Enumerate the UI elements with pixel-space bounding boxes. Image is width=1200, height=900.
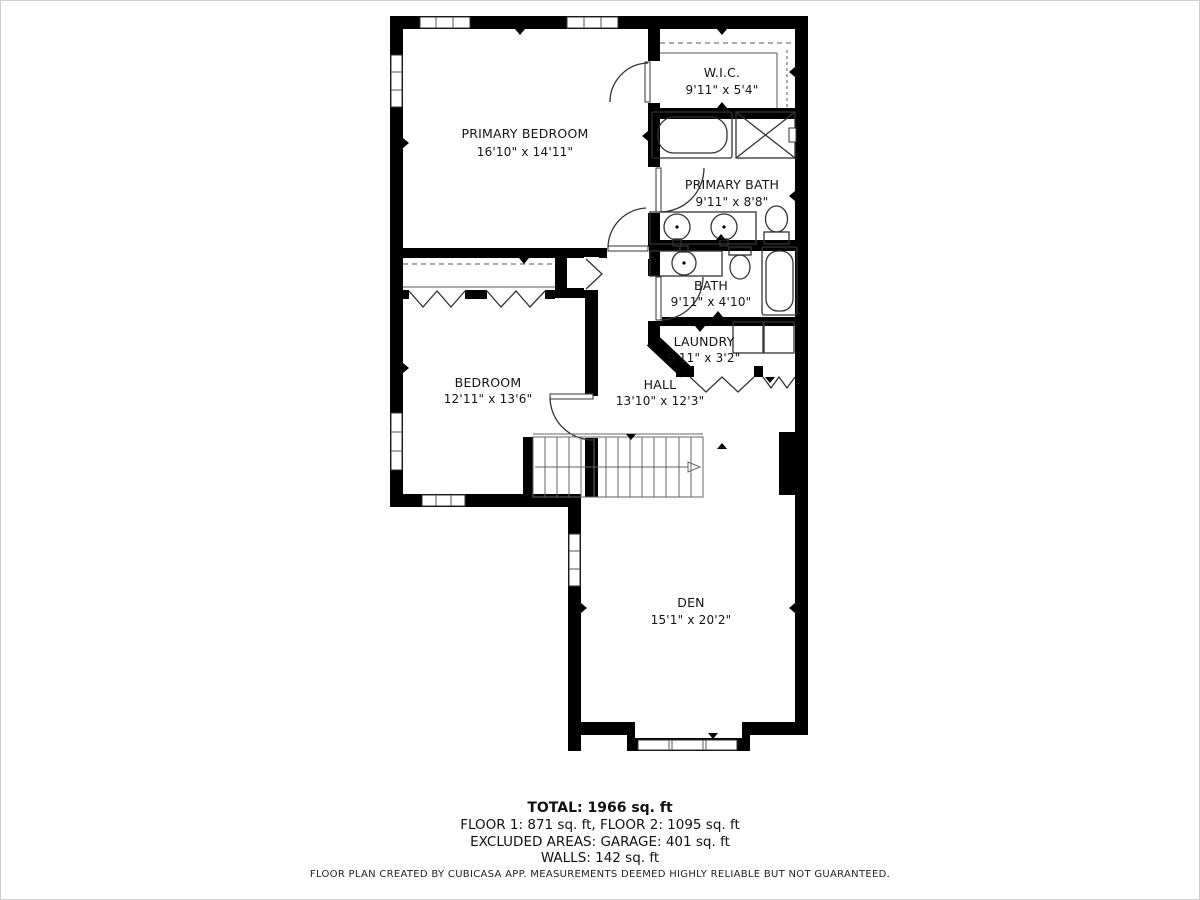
walls-area: WALLS: 142 sq. ft [0,850,1200,867]
label-hall: HALL [644,377,677,392]
door-primary-bedroom [607,208,649,259]
window-pbed-top-2 [567,17,618,28]
door-arc [608,208,648,248]
dims-primary-bath: 9'11" x 8'8" [696,195,769,209]
door-bedroom [550,394,599,440]
dims-hall: 13'10" x 12'3" [616,394,705,408]
walls [390,16,808,751]
bedroom-closet-interior [403,264,555,287]
door-laundry-bifold [690,377,795,392]
toilet-icon [764,206,789,244]
closet-nub-1 [403,290,409,299]
door-arc [610,63,648,102]
wall-laundry-bottom-left [676,366,694,377]
excluded-areas: EXCLUDED AREAS: GARAGE: 401 sq. ft [0,834,1200,851]
wall-right [795,16,808,735]
wall-bedroom-bottom [390,494,577,507]
dryer-icon [764,322,794,353]
dims-wic: 9'11" x 5'4" [686,83,759,97]
floor-plan-page: PRIMARY BEDROOM 16'10" x 14'11" W.I.C. 9… [0,0,1200,900]
label-primary-bedroom: PRIMARY BEDROOM [462,126,589,141]
area-summary: TOTAL: 1966 sq. ft FLOOR 1: 871 sq. ft, … [0,799,1200,867]
wall-closet-left [555,258,567,292]
floor-areas: FLOOR 1: 871 sq. ft, FLOOR 2: 1095 sq. f… [0,817,1200,834]
label-laundry: LAUNDRY [674,334,735,349]
laundry-fixtures [733,322,794,353]
wall-pbed-bottom [390,248,608,258]
window-den-left [569,534,580,586]
window-bedroom-left [391,413,402,470]
dims-primary-bedroom: 16'10" x 14'11" [477,145,573,159]
total-area: TOTAL: 1966 sq. ft [0,799,1200,817]
wall-den-left [568,494,581,751]
sink-vanity-icon [650,246,722,276]
disclaimer-footer: FLOOR PLAN CREATED BY CUBICASA APP. MEAS… [0,869,1200,880]
dims-bedroom: 12'11" x 13'6" [444,392,533,406]
stair-direction-arrow [688,462,700,472]
wall-laundry-bottom-nub [754,366,763,377]
window-pbed-top-1 [420,17,470,28]
closet-nub-2 [465,290,487,299]
wall-den-bottom-left [568,722,635,735]
label-wic: W.I.C. [704,65,740,80]
bathtub-icon [762,247,797,315]
closet-nub-3 [545,290,555,299]
washer-icon [733,322,763,353]
toilet-icon [729,247,751,279]
floor-plan-drawing: PRIMARY BEDROOM 16'10" x 14'11" W.I.C. 9… [0,0,1200,900]
window-den-bottom [638,740,737,750]
wall-stairs-left [523,437,533,497]
staircase [533,434,703,497]
room-labels: PRIMARY BEDROOM 16'10" x 14'11" W.I.C. 9… [444,65,779,627]
label-primary-bath: PRIMARY BATH [685,177,779,192]
window-bedroom-bottom [422,495,465,506]
chimney-block [779,432,796,495]
label-bedroom: BEDROOM [455,375,522,390]
window-pbed-left [391,55,402,107]
door-wic [610,61,662,103]
wall-bedroom-right-upper [585,288,598,397]
dims-bath: 9'11" x 4'10" [671,295,752,309]
dims-den: 15'1" x 20'2" [651,613,732,627]
label-den: DEN [677,595,704,610]
label-bath: BATH [694,278,728,293]
wall-den-bottom-right [742,722,808,735]
door-hall-closet-bifold [584,257,602,290]
dims-laundry: 9'11" x 3'2" [668,351,741,365]
